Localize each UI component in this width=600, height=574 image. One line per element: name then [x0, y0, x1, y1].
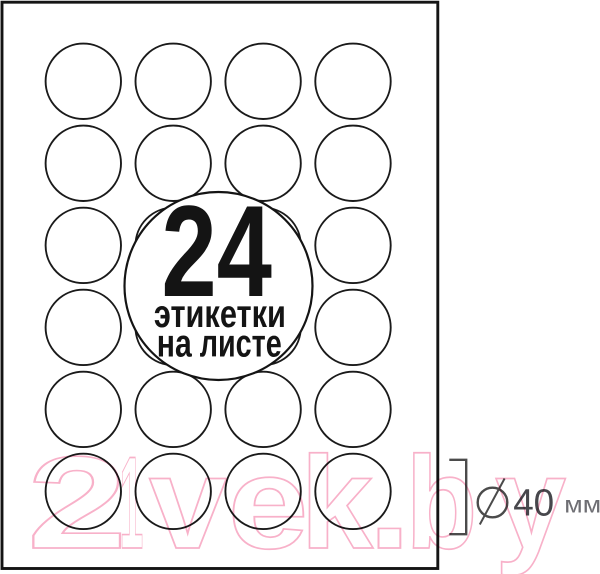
svg-text:листе: листе	[200, 322, 282, 365]
svg-text:на: на	[157, 322, 193, 365]
svg-text:1: 1	[119, 429, 143, 574]
svg-text:.: .	[368, 429, 411, 574]
svg-text:k: k	[300, 429, 373, 574]
svg-text:b: b	[406, 429, 478, 574]
svg-text:v: v	[149, 429, 227, 574]
svg-text:мм: мм	[564, 492, 600, 518]
svg-text:e: e	[228, 429, 308, 574]
svg-text:2: 2	[27, 429, 127, 574]
svg-text:y: y	[495, 429, 566, 574]
